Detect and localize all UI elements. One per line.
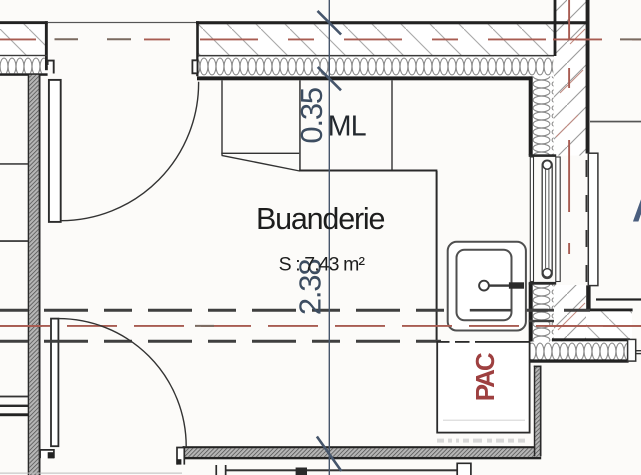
- svg-text:A: A: [632, 188, 641, 230]
- svg-text:PAC: PAC: [470, 352, 500, 401]
- svg-text:0.35: 0.35: [294, 88, 329, 144]
- svg-text:S : 7.43 m²: S : 7.43 m²: [279, 253, 366, 275]
- svg-text:ML: ML: [328, 110, 366, 142]
- svg-text:Buanderie: Buanderie: [256, 202, 384, 236]
